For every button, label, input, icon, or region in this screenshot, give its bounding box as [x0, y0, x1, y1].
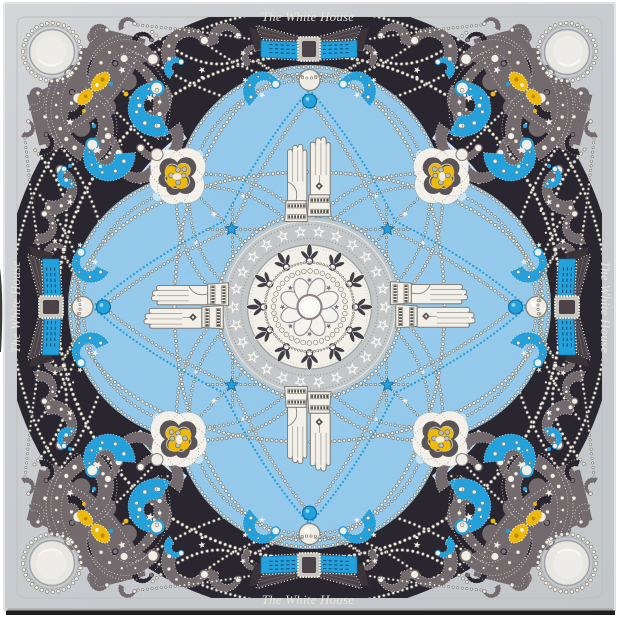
- svg-text:The White House: The White House: [598, 261, 613, 354]
- svg-text:The White House: The White House: [8, 261, 23, 354]
- svg-text:The White House: The White House: [262, 9, 355, 24]
- svg-text:The White House: The White House: [262, 592, 355, 607]
